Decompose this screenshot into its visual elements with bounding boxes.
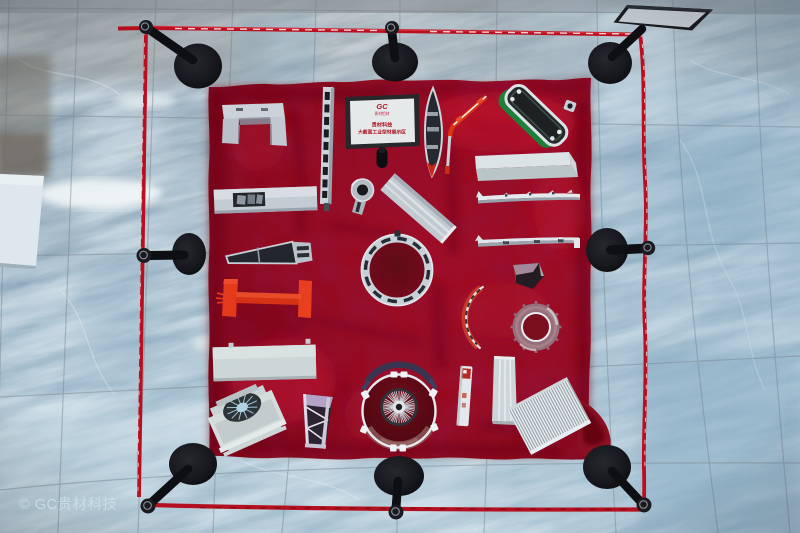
svg-text:© GC贵材科技: © GC贵材科技 <box>19 496 117 513</box>
